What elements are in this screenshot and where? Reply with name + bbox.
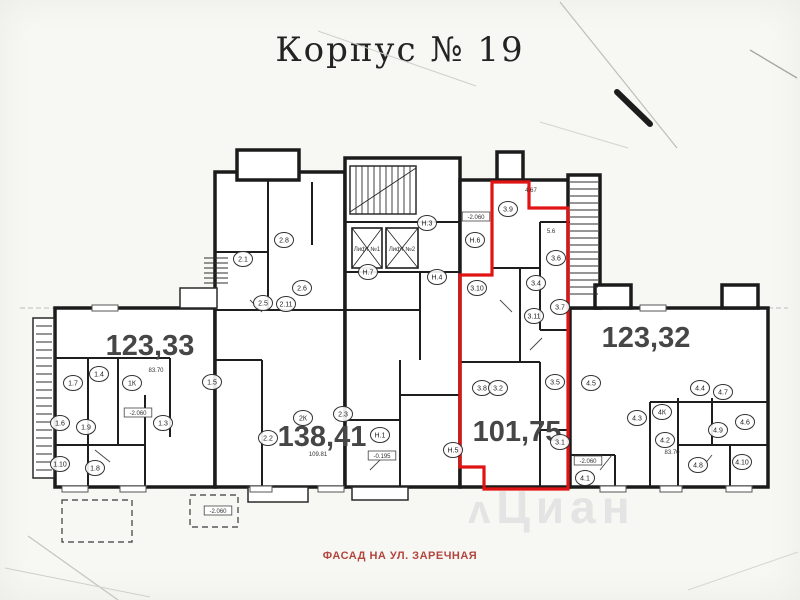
- room-label: 1.6: [55, 421, 65, 428]
- room-label: 1.9: [81, 425, 91, 432]
- room-label: 2.8: [279, 238, 289, 245]
- room-label: 3.8: [477, 386, 487, 393]
- room-label: Н.5: [448, 448, 459, 455]
- room-label: 2.3: [338, 412, 348, 419]
- room-label: 4.2: [660, 438, 670, 445]
- room-label: Н.7: [363, 270, 374, 277]
- level-mark-text: 4.67: [525, 188, 537, 194]
- level-mark-text: Лифт №2: [389, 246, 416, 253]
- room-label: 2.2: [263, 436, 273, 443]
- room-label: 3.11: [527, 314, 540, 321]
- room-label: 4.6: [740, 420, 750, 427]
- room-label: 2.5: [258, 301, 268, 308]
- room-label: 4.8: [693, 463, 703, 470]
- entrance-porch: [62, 495, 238, 542]
- room-label: 3.6: [551, 256, 561, 263]
- room-label: 3.1: [555, 440, 565, 447]
- room-label: 4.5: [586, 381, 596, 388]
- room-label: 1.4: [94, 372, 104, 379]
- scanned-floor-plan-page: Корпус № 19: [0, 0, 800, 600]
- room-label: 4.9: [713, 428, 723, 435]
- level-mark-text: Лифт №1: [354, 246, 381, 253]
- room-label: Н.6: [470, 238, 481, 245]
- watermark-text: Циан: [496, 481, 635, 533]
- room-label: 4.4: [695, 386, 705, 393]
- room-label: 1.8: [90, 466, 100, 473]
- room-label: 3.5: [550, 380, 560, 387]
- room-label: 2.6: [297, 286, 307, 293]
- level-mark-text: 83.70: [148, 368, 164, 374]
- room-label: Н.4: [432, 275, 443, 282]
- room-label: 4.3: [632, 416, 642, 423]
- apartment-area-label: 138,41: [278, 421, 367, 453]
- room-label: 2К: [299, 416, 308, 423]
- level-mark-text: -2.060: [129, 411, 147, 417]
- room-label: 1.5: [207, 380, 217, 387]
- facade-caption: ФАСАД НА УЛ. ЗАРЕЧНАЯ: [0, 550, 800, 562]
- room-label: 3.10: [470, 286, 484, 293]
- room-label: 2.11: [279, 302, 292, 309]
- level-mark-text: 5.6: [547, 229, 556, 235]
- level-mark-text: -2.060: [209, 509, 227, 515]
- room-label: Н.3: [422, 221, 433, 228]
- room-label: 1.10: [53, 462, 67, 469]
- apartment-area-label: 101,75: [473, 416, 562, 448]
- level-mark-text: -0.195: [373, 454, 391, 460]
- room-label: 3.2: [493, 386, 503, 393]
- level-mark-text: -2.060: [579, 459, 597, 465]
- level-mark-text: -2.060: [467, 215, 485, 221]
- apartment-area-label: 123,33: [106, 330, 195, 362]
- room-label: 1К: [128, 381, 137, 388]
- watermark: ʌЦиан: [468, 480, 728, 534]
- room-label: 2.1: [238, 257, 248, 264]
- apartment-area-label: 123,32: [602, 322, 691, 354]
- room-label: 4.7: [718, 390, 728, 397]
- room-label: 4.10: [735, 460, 749, 467]
- watermark-logo-icon: ʌ: [468, 488, 490, 532]
- room-label: 3.7: [555, 305, 565, 312]
- room-label: 1.7: [68, 381, 78, 388]
- level-mark-text: 109.81: [309, 452, 328, 458]
- room-label: 4К: [658, 410, 667, 417]
- room-label: 3.4: [531, 281, 541, 288]
- level-mark-text: 83.70: [664, 450, 680, 456]
- room-label: 1.3: [158, 421, 168, 428]
- room-label: 3.9: [503, 207, 513, 214]
- room-label: Н.1: [375, 433, 386, 440]
